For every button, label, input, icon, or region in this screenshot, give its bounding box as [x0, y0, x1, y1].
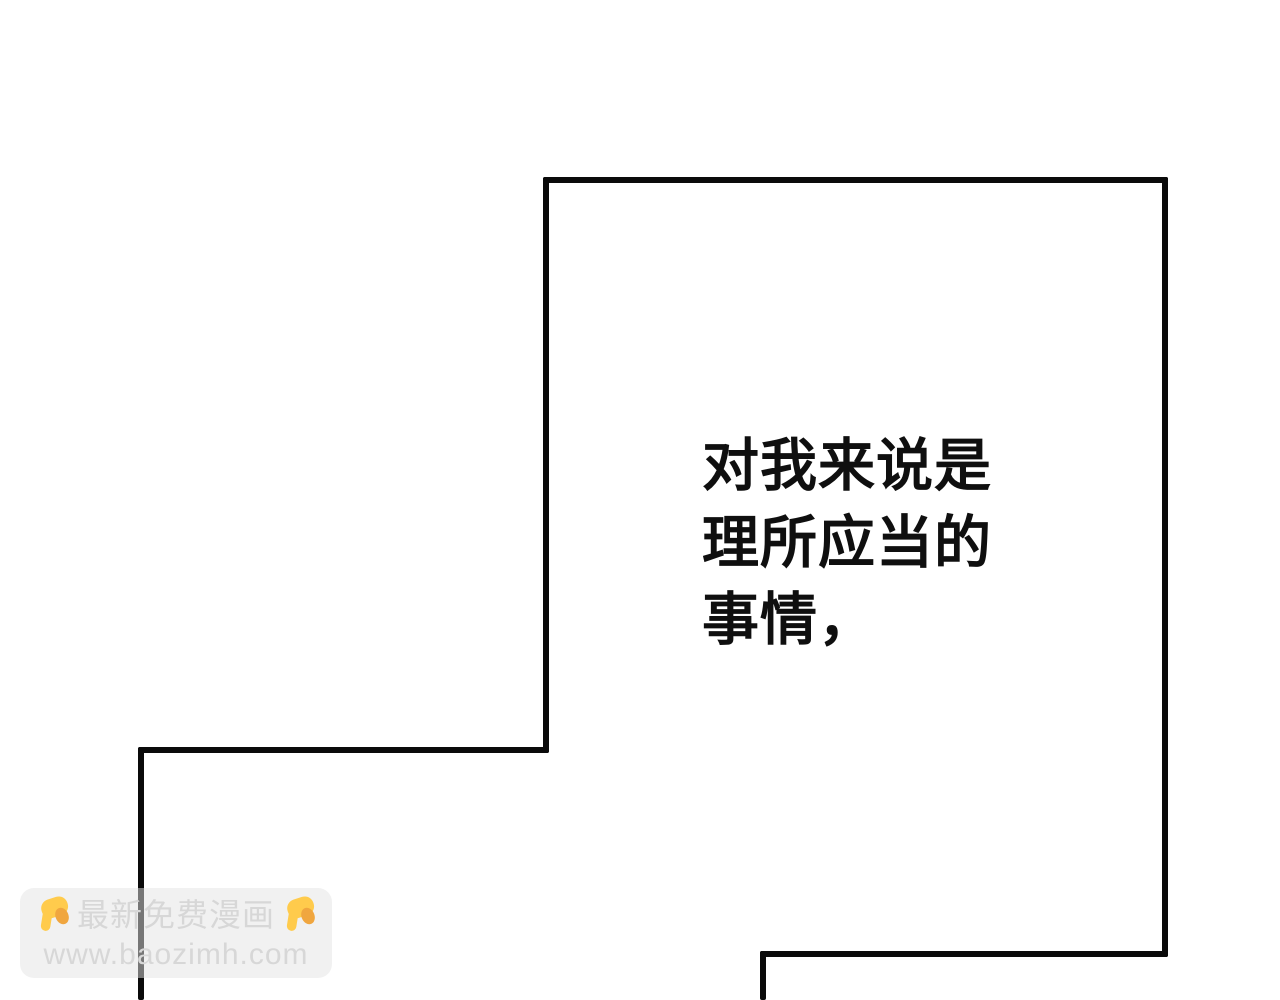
- watermark-url: www.baozimh.com: [43, 937, 308, 973]
- panel-border-left-main: [543, 177, 549, 753]
- panel-border-bottom-right: [760, 951, 1168, 957]
- watermark-title: 最新免费漫画: [77, 895, 275, 935]
- pointing-down-emoji-left: [33, 895, 73, 935]
- panel-border-top: [543, 177, 1168, 183]
- watermark-row-title: 最新免费漫画: [33, 893, 319, 937]
- panel-border-drop-right: [760, 951, 766, 1000]
- panel-border-mid-left: [138, 747, 549, 753]
- comic-page: 对我来说是 理所应当的 事情， 最新免费漫画 www.baozimh.com: [0, 0, 1280, 1000]
- watermark-badge: 最新免费漫画 www.baozimh.com: [20, 888, 332, 978]
- panel-border-right-main: [1162, 177, 1168, 957]
- speech-text: 对我来说是 理所应当的 事情，: [702, 428, 1132, 659]
- pointing-down-emoji-right: [279, 895, 319, 935]
